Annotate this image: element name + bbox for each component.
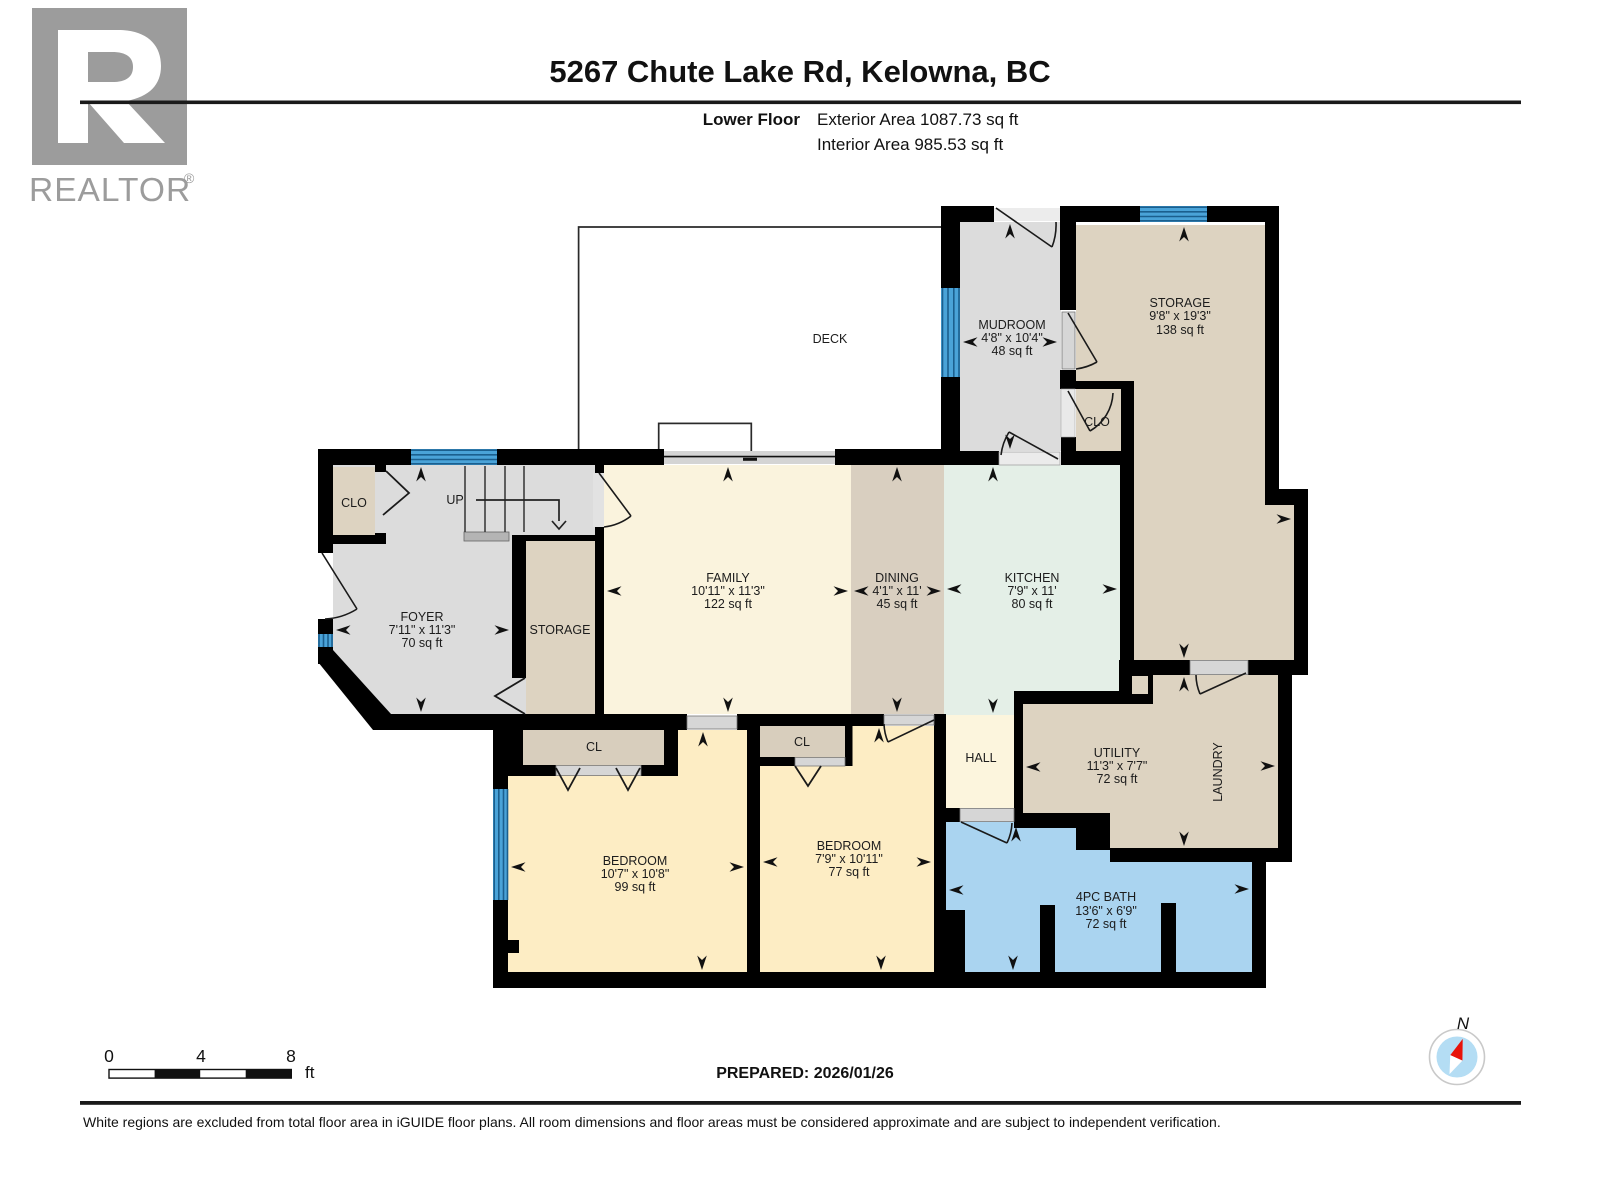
svg-text:White regions are excluded fro: White regions are excluded from total fl…: [83, 1114, 1221, 1130]
svg-text:STORAGE: STORAGE: [1150, 296, 1211, 310]
svg-text:CLO: CLO: [341, 496, 367, 510]
svg-text:48 sq ft: 48 sq ft: [992, 344, 1034, 358]
svg-text:7'9" x 10'11": 7'9" x 10'11": [815, 852, 883, 866]
svg-text:Lower Floor: Lower Floor: [703, 110, 801, 129]
svg-text:Interior Area 985.53 sq ft: Interior Area 985.53 sq ft: [817, 135, 1003, 154]
svg-text:ft: ft: [305, 1063, 315, 1082]
svg-text:4PC BATH: 4PC BATH: [1076, 890, 1136, 904]
svg-text:CL: CL: [586, 740, 602, 754]
svg-text:4: 4: [196, 1046, 206, 1066]
svg-text:LAUNDRY: LAUNDRY: [1211, 742, 1225, 802]
svg-text:10'11" x 11'3": 10'11" x 11'3": [691, 584, 765, 598]
svg-text:PREPARED: 2026/01/26: PREPARED: 2026/01/26: [716, 1065, 894, 1082]
svg-text:10'7" x 10'8": 10'7" x 10'8": [601, 867, 670, 881]
svg-text:®: ®: [184, 170, 195, 186]
svg-text:122 sq ft: 122 sq ft: [704, 597, 752, 611]
svg-text:FOYER: FOYER: [400, 610, 443, 624]
svg-text:HALL: HALL: [965, 751, 996, 765]
svg-text:CLO: CLO: [1084, 415, 1110, 429]
svg-text:FAMILY: FAMILY: [706, 571, 750, 585]
svg-text:7'11" x 11'3": 7'11" x 11'3": [389, 623, 456, 637]
svg-text:0: 0: [104, 1046, 114, 1066]
svg-text:7'9" x 11': 7'9" x 11': [1007, 584, 1056, 598]
svg-text:13'6" x 6'9": 13'6" x 6'9": [1075, 904, 1137, 918]
svg-text:STORAGE: STORAGE: [530, 623, 591, 637]
svg-text:MUDROOM: MUDROOM: [978, 318, 1045, 332]
svg-text:138 sq ft: 138 sq ft: [1156, 323, 1204, 337]
svg-text:UTILITY: UTILITY: [1094, 746, 1141, 760]
svg-text:KITCHEN: KITCHEN: [1005, 571, 1060, 585]
svg-text:99 sq ft: 99 sq ft: [615, 880, 657, 894]
svg-text:4'8" x 10'4": 4'8" x 10'4": [981, 331, 1043, 345]
svg-text:8: 8: [286, 1046, 296, 1066]
svg-text:DINING: DINING: [875, 571, 919, 585]
svg-text:45 sq ft: 45 sq ft: [877, 597, 919, 611]
svg-text:11'3" x 7'7": 11'3" x 7'7": [1087, 759, 1148, 773]
svg-text:UP: UP: [446, 493, 463, 507]
svg-text:80 sq ft: 80 sq ft: [1012, 597, 1054, 611]
svg-text:70 sq ft: 70 sq ft: [402, 636, 444, 650]
svg-text:77 sq ft: 77 sq ft: [829, 865, 871, 879]
svg-text:DECK: DECK: [813, 332, 848, 346]
svg-text:CL: CL: [794, 735, 810, 749]
svg-text:9'8" x 19'3": 9'8" x 19'3": [1149, 309, 1211, 323]
svg-text:BEDROOM: BEDROOM: [603, 854, 668, 868]
svg-text:REALTOR: REALTOR: [29, 172, 191, 209]
svg-text:72 sq ft: 72 sq ft: [1086, 917, 1128, 931]
svg-text:BEDROOM: BEDROOM: [817, 839, 882, 853]
svg-text:Exterior Area 1087.73 sq ft: Exterior Area 1087.73 sq ft: [817, 110, 1019, 129]
svg-text:5267 Chute Lake Rd, Kelowna, B: 5267 Chute Lake Rd, Kelowna, BC: [549, 54, 1050, 89]
svg-text:4'1" x 11': 4'1" x 11': [872, 584, 921, 598]
svg-text:N: N: [1457, 1014, 1470, 1033]
svg-text:72 sq ft: 72 sq ft: [1097, 772, 1139, 786]
